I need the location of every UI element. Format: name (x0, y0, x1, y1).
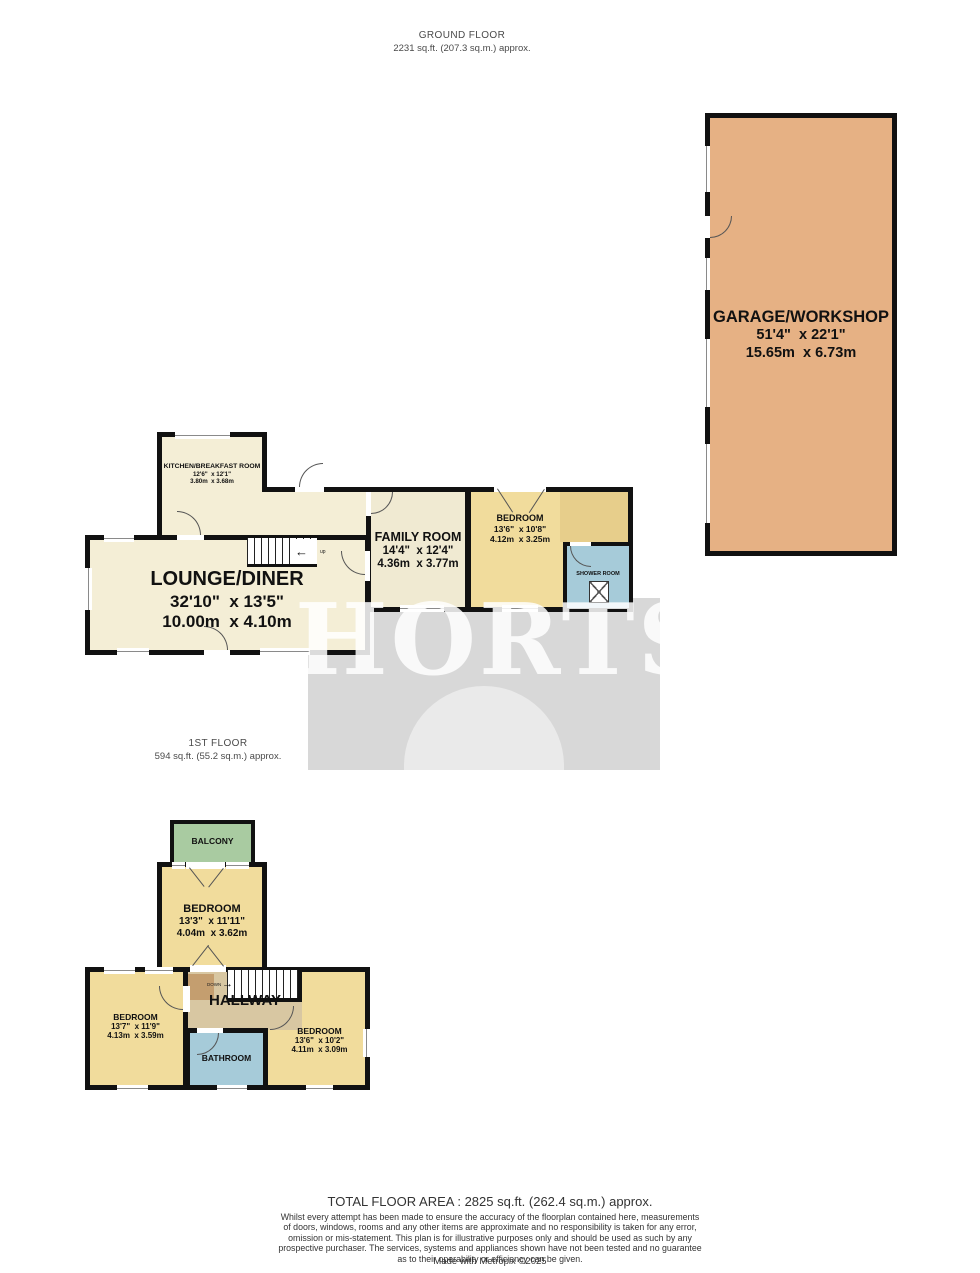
window (703, 258, 710, 290)
room-dims-metric: 4.36m x 3.77m (368, 558, 468, 572)
room-name: HALLWAY (195, 992, 295, 1010)
window (306, 1085, 333, 1092)
room-dims-metric: 15.65m x 6.73m (705, 345, 897, 362)
window (226, 862, 249, 869)
room-name: BEDROOM (88, 1012, 183, 1022)
window (117, 1085, 148, 1092)
corridor (267, 487, 370, 538)
room-name: BEDROOM (160, 903, 264, 916)
room-name: BEDROOM (472, 513, 568, 524)
first-floor-title: 1ST FLOOR (0, 738, 436, 749)
room-dims-imperial: 13'6" x 10'8" (472, 524, 568, 534)
disclaimer-line: Whilst every attempt has been made to en… (0, 1212, 980, 1222)
room-name: GARAGE/WORKSHOP (705, 308, 897, 327)
stairs-up-arrow-icon: ← (295, 545, 308, 558)
kitchen-label: KITCHEN/BREAKFAST ROOM 12'6" x 12'1" 3.8… (159, 463, 265, 486)
bedroom-middle-label: BEDROOM 13'3" x 11'11" 4.04m x 3.62m (160, 903, 264, 940)
bedroom-ground-label: BEDROOM 13'6" x 10'8" 4.12m x 3.25m (472, 513, 568, 544)
window (703, 444, 710, 523)
room-dims-metric: 4.13m x 3.59m (88, 1031, 183, 1040)
door-opening (204, 650, 230, 655)
first-floor-area: 594 sq.ft. (55.2 sq.m.) approx. (0, 751, 436, 762)
metropix-credit: Made with Metropix ©2025 (0, 1256, 980, 1267)
room-name: BEDROOM (272, 1026, 367, 1036)
disclaimer-line: of doors, windows, rooms and any other i… (0, 1222, 980, 1232)
room-name: BATHROOM (187, 1053, 266, 1063)
room-dims-metric: 4.11m x 3.09m (272, 1045, 367, 1054)
door-opening (183, 986, 190, 1012)
door-opening (295, 487, 324, 492)
garage-label: GARAGE/WORKSHOP 51'4" x 22'1" 15.65m x 6… (705, 308, 897, 362)
ground-floor-title: GROUND FLOOR (0, 30, 924, 41)
window (175, 432, 230, 439)
floorplan-page: GROUND FLOOR 2231 sq.ft. (207.3 sq.m.) a… (0, 0, 980, 1273)
balcony-label: BALCONY (172, 836, 253, 846)
door-opening (177, 535, 204, 540)
bedroom-alcove (560, 492, 628, 542)
room-dims-metric: 4.04m x 3.62m (160, 928, 264, 940)
door-opening (494, 487, 546, 492)
room-dims-metric: 4.12m x 3.25m (472, 534, 568, 544)
door-opening (190, 965, 226, 972)
window (117, 648, 149, 655)
room-name: SHOWER ROOM (565, 571, 631, 577)
room-dims-imperial: 14'4" x 12'4" (368, 545, 468, 559)
window (145, 967, 173, 974)
window (104, 535, 134, 542)
door-opening (186, 862, 225, 869)
stairs-up-label: up (320, 550, 326, 555)
room-dims-imperial: 13'6" x 10'2" (272, 1036, 367, 1045)
room-dims-imperial: 13'3" x 11'11" (160, 916, 264, 928)
watermark-logo-text: HORTS (295, 592, 665, 690)
room-dims-metric: 3.80m x 3.68m (159, 478, 265, 485)
shower-room-label: SHOWER ROOM (565, 571, 631, 577)
stairs-down-label: DOWN (207, 983, 221, 988)
stairs-down-arrow-icon: → (222, 979, 233, 990)
room-name: FAMILY ROOM (368, 530, 468, 545)
window (104, 967, 135, 974)
room-dims-imperial: 51'4" x 22'1" (705, 327, 897, 344)
window (703, 146, 710, 192)
total-floor-area: TOTAL FLOOR AREA : 2825 sq.ft. (262.4 sq… (0, 1194, 980, 1209)
room-dims-imperial: 12'6" x 12'1" (159, 471, 265, 478)
bathroom-label: BATHROOM (187, 1053, 266, 1063)
disclaimer-line: prospective purchaser. The services, sys… (0, 1243, 980, 1253)
window (172, 862, 185, 869)
door-opening (703, 216, 710, 238)
window (217, 1085, 247, 1092)
bedroom-right-label: BEDROOM 13'6" x 10'2" 4.11m x 3.09m (272, 1026, 367, 1055)
family-room-label: FAMILY ROOM 14'4" x 12'4" 4.36m x 3.77m (368, 530, 468, 572)
room-name: KITCHEN/BREAKFAST ROOM (159, 463, 265, 471)
disclaimer-line: omission or mis-statement. This plan is … (0, 1233, 980, 1243)
window (85, 568, 92, 610)
ground-floor-area: 2231 sq.ft. (207.3 sq.m.) approx. (0, 43, 924, 54)
room-name: BALCONY (172, 836, 253, 846)
room-dims-imperial: 13'7" x 11'9" (88, 1022, 183, 1031)
hallway-label: HALLWAY (195, 992, 295, 1010)
door-arc (299, 463, 323, 487)
bedroom-left-label: BEDROOM 13'7" x 11'9" 4.13m x 3.59m (88, 1012, 183, 1041)
